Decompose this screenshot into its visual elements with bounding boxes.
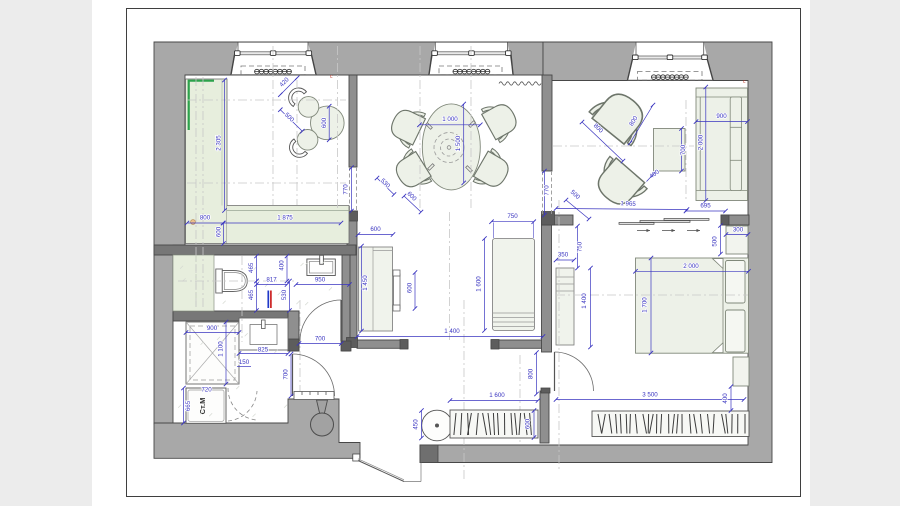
svg-text:695: 695 [700,203,711,210]
svg-text:350: 350 [558,252,569,259]
svg-text:600: 600 [216,226,223,237]
svg-text:750: 750 [577,241,584,252]
svg-text:700: 700 [315,336,326,343]
svg-text:900: 900 [716,113,727,120]
svg-text:1 965: 1 965 [620,200,636,208]
svg-text:700: 700 [680,144,687,155]
svg-text:770: 770 [544,185,551,196]
svg-text:300: 300 [733,227,744,234]
svg-text:900: 900 [207,325,218,332]
svg-text:750: 750 [507,213,518,220]
svg-text:1 000: 1 000 [442,116,458,123]
svg-text:665: 665 [185,400,192,411]
svg-text:1 600: 1 600 [489,392,505,399]
svg-text:2 000: 2 000 [698,134,705,150]
svg-text:825: 825 [258,347,269,354]
svg-text:600: 600 [321,117,328,128]
svg-text:700: 700 [283,369,290,380]
svg-text:600: 600 [370,226,381,233]
svg-text:800: 800 [200,215,211,222]
svg-text:600: 600 [407,282,414,293]
svg-text:400: 400 [279,260,286,271]
svg-text:3 500: 3 500 [642,392,658,399]
svg-text:2 000: 2 000 [683,263,699,270]
svg-text:150: 150 [239,359,250,366]
svg-text:1 100: 1 100 [218,341,225,357]
svg-text:1 700: 1 700 [642,297,649,313]
svg-text:1 500: 1 500 [455,135,462,151]
svg-text:600: 600 [525,418,532,429]
svg-text:950: 950 [315,277,326,284]
svg-text:1 450: 1 450 [362,275,369,291]
svg-text:450: 450 [413,419,420,430]
svg-text:770: 770 [343,184,350,195]
svg-text:530: 530 [281,289,288,300]
svg-text:817: 817 [266,277,277,284]
svg-text:1 600: 1 600 [476,276,483,292]
svg-text:1 875: 1 875 [277,215,293,222]
svg-text:500: 500 [712,236,719,247]
svg-text:1 400: 1 400 [581,293,588,309]
svg-text:720: 720 [201,387,212,394]
svg-text:2 305: 2 305 [216,135,223,151]
svg-text:400: 400 [722,393,729,404]
svg-text:465: 465 [248,262,255,273]
svg-text:465: 465 [248,289,255,300]
svg-text:800: 800 [528,368,535,379]
svg-text:1 400: 1 400 [444,328,460,335]
